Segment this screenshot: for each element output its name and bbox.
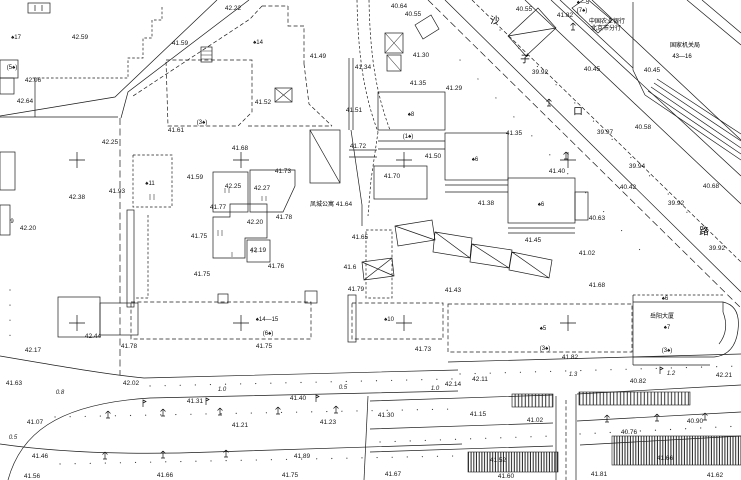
spot-elevation-label: 41.63	[6, 381, 22, 388]
building-code-label: ♠7	[664, 325, 671, 331]
place-name-label: 国家机关局	[670, 43, 700, 49]
spot-elevation-label: 41.07	[27, 420, 43, 427]
curb-width-label: 1.0	[431, 386, 439, 392]
spot-elevation-label: 41.68	[232, 146, 248, 153]
spot-elevation-label: 41.75	[256, 344, 272, 351]
building-code-label: ♠—5	[577, 0, 590, 6]
spot-elevation-label: 42.64	[17, 99, 33, 106]
spot-elevation-label: 40.82	[630, 379, 646, 386]
spot-elevation-label: 41.75	[191, 234, 207, 241]
building-code-label: ♠5	[540, 326, 547, 332]
spot-elevation-label: 41.78	[276, 215, 292, 222]
building-code-label: ♠10	[384, 317, 394, 323]
spot-elevation-label: 41.82	[557, 13, 573, 20]
spot-elevation-label: 41.43	[445, 288, 461, 295]
survey-map-canvas: 42.2242.5942.0642.6441.5941.6141.4941.52…	[0, 0, 741, 480]
spot-elevation-label: 41.76	[268, 264, 284, 271]
spot-elevation-label: 41.35	[506, 131, 522, 138]
building-code-label: (1♠)	[403, 134, 414, 140]
spot-elevation-label: 42.17	[25, 348, 41, 355]
spot-elevation-label: 40.76	[621, 430, 637, 437]
curb-width-label: 0.5	[9, 435, 17, 441]
spot-elevation-label: 41.72	[350, 144, 366, 151]
spot-elevation-label: 40.45	[584, 67, 600, 74]
building-code-label: ♠6	[662, 296, 669, 302]
spot-elevation-label: 41.40	[549, 169, 565, 176]
spot-elevation-label: 42.14	[445, 382, 461, 389]
spot-elevation-label: 41.50	[425, 154, 441, 161]
spot-elevation-label: 41.46	[32, 454, 48, 461]
spot-elevation-label: 41.52	[255, 100, 271, 107]
spot-elevation-label: 40.68	[703, 184, 719, 191]
spot-elevation-label: 41.38	[478, 201, 494, 208]
building-code-label: ♠17	[11, 35, 21, 41]
place-name-label: 北京市分行	[591, 26, 621, 32]
building-code-label: ♠6	[538, 202, 545, 208]
spot-elevation-label: 42.20	[247, 220, 263, 227]
spot-elevation-label: 41.30	[378, 413, 394, 420]
spot-elevation-label: 41.93	[109, 189, 125, 196]
spot-elevation-label: 41.51	[346, 108, 362, 115]
curb-width-label: 1.2	[667, 371, 675, 377]
spot-elevation-label: 41.81	[591, 472, 607, 479]
spot-elevation-label: 41.62	[707, 473, 723, 480]
building-code-label: (3♠)	[662, 348, 673, 354]
spot-elevation-label: 40.64	[391, 4, 407, 11]
curb-width-label: 0.8	[56, 390, 64, 396]
spot-elevation-label: 42.25	[102, 140, 118, 147]
spot-elevation-label: 41.45	[525, 238, 541, 245]
building-code-label: (5♠)	[7, 65, 18, 71]
spot-elevation-label: 42.22	[225, 6, 241, 13]
place-name-label: 凤城公寓	[310, 202, 334, 208]
spot-elevation-label: 41.40	[290, 396, 306, 403]
curb-width-label: 1.0	[218, 387, 226, 393]
spot-elevation-label: 41.65	[352, 235, 368, 242]
spot-elevation-label: 41.73	[415, 347, 431, 354]
road-name-char: 口	[573, 107, 583, 117]
building-code-label: 9	[10, 219, 13, 225]
road-name-char: 路	[699, 227, 709, 237]
place-name-label: 43—16	[672, 54, 691, 60]
spot-elevation-label: 40.90	[687, 419, 703, 426]
spot-elevation-label: 42.44	[85, 334, 101, 341]
building-code-label: ♠8	[408, 112, 415, 118]
spot-elevation-label: 41.23	[320, 420, 336, 427]
spot-elevation-label: 42.21	[716, 373, 732, 380]
spot-elevation-label: 40.55	[516, 7, 532, 14]
spot-elevation-label: 42.19	[250, 248, 266, 255]
spot-elevation-label: 40.58	[635, 125, 651, 132]
place-name-label: 岳阳大厦	[650, 314, 674, 320]
building-code-label: (6♠)	[263, 331, 274, 337]
spot-elevation-label: 42.27	[254, 186, 270, 193]
spot-elevation-label: 41.60	[498, 474, 514, 480]
spot-elevation-label: 41.02	[527, 418, 543, 425]
spot-elevation-label: 42.25	[225, 184, 241, 191]
spot-elevation-label: 40.45	[644, 68, 660, 75]
spot-elevation-label: 41.21	[232, 423, 248, 430]
spot-elevation-label: 41.66	[157, 473, 173, 480]
spot-elevation-label: 41.68	[589, 283, 605, 290]
spot-elevation-label: 41.75	[194, 272, 210, 279]
spot-elevation-label: 41.56	[24, 474, 40, 480]
spot-elevation-label: 41.75	[282, 473, 298, 480]
spot-elevation-label: 41.67	[385, 472, 401, 479]
spot-elevation-label: 41.78	[121, 344, 137, 351]
spot-elevation-label: 41.61	[168, 128, 184, 135]
spot-elevation-label: 41.34	[355, 65, 371, 72]
building-code-label: (3♠)	[197, 120, 208, 126]
building-code-label: ♠6	[472, 157, 479, 163]
spot-elevation-label: 39.92	[532, 70, 548, 77]
spot-elevation-label: 39.92	[709, 246, 725, 253]
spot-elevation-label: 41.70	[384, 174, 400, 181]
spot-elevation-label: 41.59	[172, 41, 188, 48]
spot-elevation-label: 41.73	[275, 169, 291, 176]
spot-elevation-label: 39.92	[668, 201, 684, 208]
spot-elevation-label: 41.82	[562, 355, 578, 362]
spot-elevation-label: 41.79	[348, 287, 364, 294]
curb-width-label: 0.5	[339, 385, 347, 391]
spot-elevation-label: 41.66	[657, 456, 673, 463]
building-code-label: (7♠)	[577, 8, 588, 14]
spot-elevation-label: 41.52	[490, 458, 506, 465]
spot-elevation-label: 39.94	[629, 164, 645, 171]
spot-elevation-label: 41.64	[336, 202, 352, 209]
spot-elevation-label: 41.35	[410, 81, 426, 88]
spot-elevation-label: 40.42	[620, 185, 636, 192]
spot-elevation-label: 41.31	[187, 399, 203, 406]
spot-elevation-label: 41.02	[579, 251, 595, 258]
map-labels: 42.2242.5942.0642.6441.5941.6141.4941.52…	[0, 0, 741, 480]
spot-elevation-label: 41.6	[344, 265, 357, 272]
building-code-label: ♠11	[145, 181, 154, 187]
spot-elevation-label: 42.20	[20, 226, 36, 233]
spot-elevation-label: 41.15	[470, 412, 486, 419]
spot-elevation-label: 42.11	[472, 377, 488, 384]
spot-elevation-label: 41.49	[310, 54, 326, 61]
spot-elevation-label: 42.38	[69, 195, 85, 202]
spot-elevation-label: 41.30	[413, 53, 429, 60]
building-code-label: ♠14	[253, 40, 263, 46]
spot-elevation-label: 42.59	[72, 35, 88, 42]
road-name-char: 子	[520, 55, 530, 65]
place-name-label: 中国农业银行	[589, 19, 625, 25]
spot-elevation-label: 40.55	[405, 12, 421, 19]
building-code-label: ♠14—15	[256, 317, 279, 323]
spot-elevation-label: 42.06	[25, 78, 41, 85]
building-code-label: (3♠)	[540, 346, 551, 352]
spot-elevation-label: 41.29	[446, 86, 462, 93]
spot-elevation-label: 41.77	[210, 205, 226, 212]
spot-elevation-label: 39.97	[597, 130, 613, 137]
spot-elevation-label: 41.89	[294, 454, 310, 461]
road-name-char: 沙	[490, 16, 500, 26]
spot-elevation-label: 41.59	[187, 175, 203, 182]
spot-elevation-label: 40.63	[589, 216, 605, 223]
spot-elevation-label: 42.02	[123, 381, 139, 388]
curb-width-label: 1.3	[569, 372, 577, 378]
